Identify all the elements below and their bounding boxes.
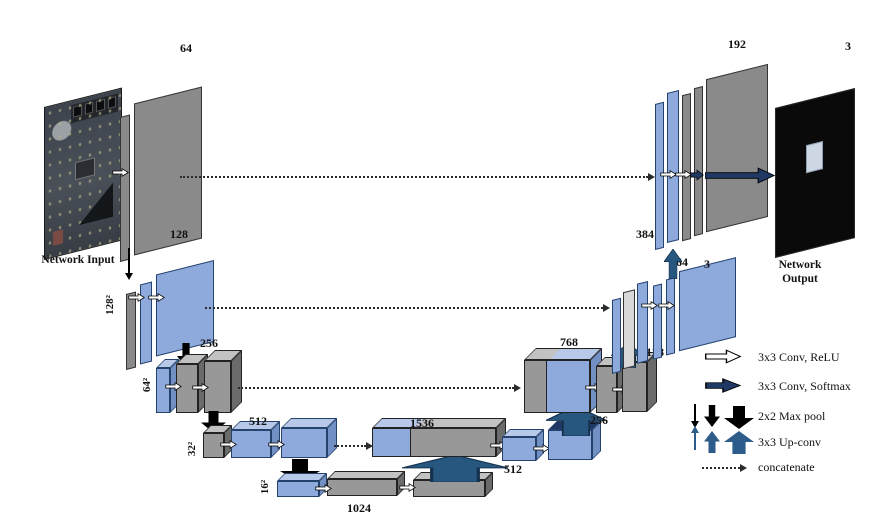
max-pool-legend-icon-large: [724, 406, 754, 429]
dec2-concat-label: 384: [636, 228, 654, 240]
conv-softmax-arrow-icon: [705, 167, 775, 184]
dec4-upconv-label: 512: [504, 463, 522, 475]
conv-relu-arrow-icon: [220, 439, 237, 450]
conv-box: [231, 430, 271, 458]
dec3-upconv-label: 256: [590, 414, 608, 426]
dec1-concat-label: 192: [728, 38, 746, 50]
dec3-concat-box: [524, 360, 590, 413]
output-caption: Network Output: [760, 258, 840, 287]
pooled-box: [277, 481, 319, 497]
up-conv-arrow-icon: [402, 455, 508, 482]
conv-box: [502, 437, 536, 461]
conv-plane: [134, 87, 202, 256]
up-conv-legend-icon-small: [694, 432, 696, 450]
concatenate-skip-row4: [334, 445, 366, 447]
enc3-size-label: 64²: [141, 365, 153, 405]
dec3-concat-label: 768: [560, 336, 578, 348]
conv-relu-arrow-icon: [268, 439, 285, 450]
up-conv-arrow-icon: [664, 249, 682, 279]
conv-softmax-arrow-icon: [690, 168, 704, 182]
conv-plane: [706, 64, 768, 232]
dec2-out-label: 3: [704, 258, 710, 270]
up-conv-legend-icon-medium: [704, 431, 720, 453]
legend-label-conv-softmax: 3x3 Conv, Softmax: [758, 380, 851, 392]
output-feature-plane: [679, 257, 736, 351]
conv-plane: [694, 86, 703, 236]
legend-label-concatenate: concatenate: [758, 461, 815, 473]
input-photo-plane: [44, 88, 122, 260]
max-pool-legend-icon-small: [694, 404, 696, 422]
concat-plane: [623, 289, 635, 369]
up-conv-legend-icon-large: [724, 431, 754, 454]
dec4-concat-label: 1536: [410, 417, 434, 429]
conv-relu-arrow-icon: [641, 300, 658, 311]
enc2-size-label: 128²: [104, 285, 116, 325]
conv-box: [281, 428, 327, 458]
max-pool-arrow-icon: [128, 248, 130, 274]
enc2-channels-label: 128: [170, 228, 188, 240]
concatenate-skip-row2: [205, 307, 603, 309]
bottleneck-size-label: 16²: [259, 467, 271, 507]
conv-relu-arrow-icon: [128, 292, 145, 303]
conv-relu-arrow-icon: [315, 483, 332, 494]
conv-relu-arrow-icon: [192, 382, 209, 393]
concat-plane: [667, 90, 679, 243]
bottleneck-channels-label: 1024: [347, 502, 371, 514]
conv-plane: [120, 115, 130, 262]
legend: 3x3 Conv, ReLU 3x3 Conv, Softmax 2x2 Max…: [688, 340, 884, 480]
output-detected-region: [806, 141, 823, 173]
conv-relu-arrow-icon: [165, 381, 182, 392]
concatenate-skip-row3: [238, 387, 514, 389]
legend-label-conv-relu: 3x3 Conv, ReLU: [758, 351, 840, 363]
pooled-plane: [126, 292, 136, 370]
conv-softmax-legend-icon: [704, 378, 742, 393]
conv-relu-arrow-icon: [399, 482, 416, 493]
enc1-channels-label: 64: [180, 42, 192, 54]
output-mask-plane: [775, 88, 855, 258]
conv-relu-arrow-icon: [658, 300, 675, 311]
conv-box: [413, 480, 485, 497]
conv-relu-arrow-icon: [112, 167, 129, 178]
input-photo-red-part: [53, 229, 63, 245]
conv-plane: [666, 277, 675, 355]
conv-plane: [653, 284, 662, 360]
dec4-concat-box: [372, 428, 496, 457]
concatenate-skip-row1: [180, 176, 648, 178]
concat-plane: [612, 298, 621, 374]
concat-plane: [637, 281, 648, 364]
enc4-channels-label: 512: [249, 415, 267, 427]
unet-architecture-diagram: Network Input 64 128 128² 256 64² 512 32…: [0, 0, 888, 529]
legend-label-max-pool: 2x2 Max pool: [758, 410, 825, 422]
legend-label-up-conv: 3x3 Up-conv: [758, 436, 821, 448]
conv-box: [327, 479, 397, 496]
output-channels-label: 3: [845, 40, 851, 52]
conv-relu-legend-icon: [704, 349, 742, 364]
conv-relu-arrow-icon: [148, 292, 165, 303]
input-caption: Network Input: [40, 253, 116, 267]
enc3-channels-label: 256: [200, 337, 218, 349]
concatenate-legend-icon: [702, 467, 740, 469]
conv-box: [622, 362, 647, 412]
max-pool-legend-icon-medium: [704, 405, 720, 427]
enc4-size-label: 32²: [186, 429, 198, 469]
